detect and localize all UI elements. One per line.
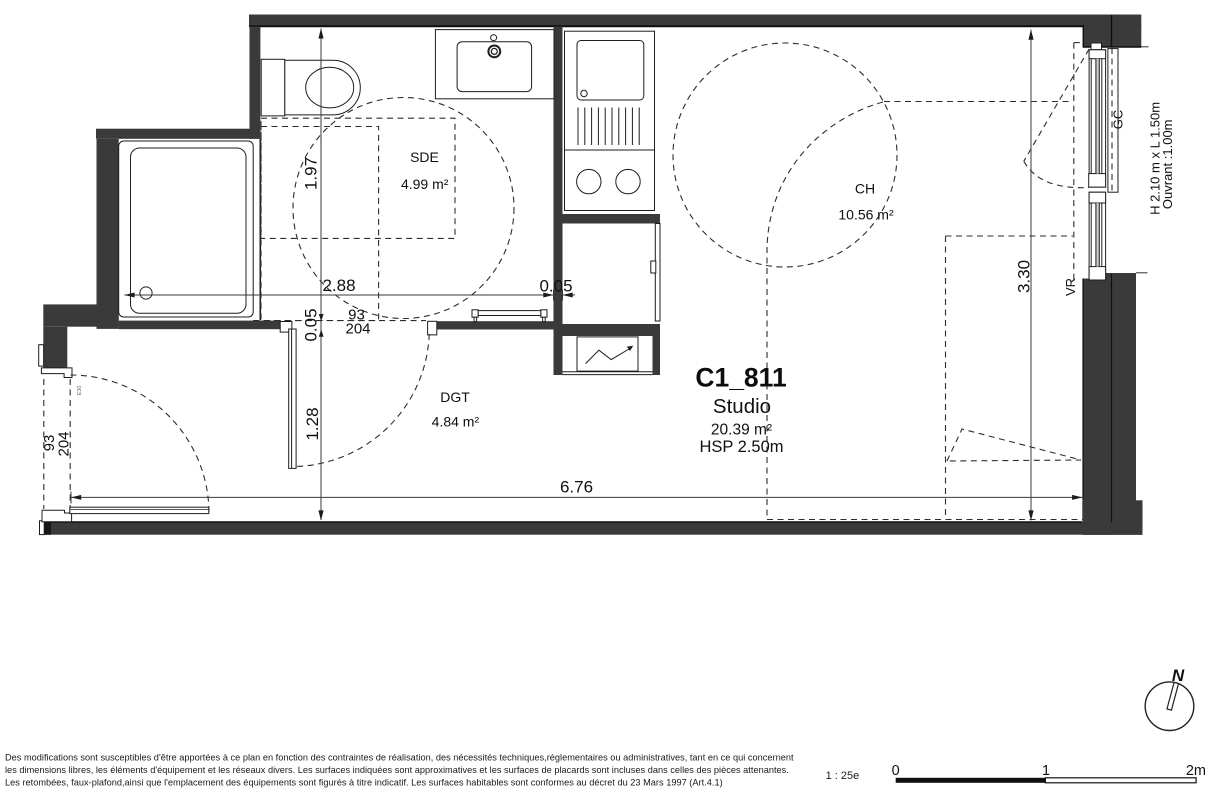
svg-text:204: 204 [345, 320, 370, 337]
svg-text:CH: CH [855, 181, 875, 197]
svg-text:1: 1 [1042, 763, 1050, 779]
svg-text:2m: 2m [1186, 763, 1206, 779]
svg-text:1.28: 1.28 [303, 407, 322, 440]
svg-text:C1_811: C1_811 [695, 363, 786, 393]
svg-text:N: N [1172, 666, 1185, 685]
svg-text:4.84 m²: 4.84 m² [432, 413, 480, 429]
svg-text:VR: VR [1063, 278, 1078, 296]
svg-text:DGT: DGT [440, 389, 470, 405]
svg-text:6.76: 6.76 [560, 478, 593, 497]
svg-text:0.05: 0.05 [302, 308, 321, 341]
svg-text:E30: E30 [77, 386, 83, 396]
svg-text:GC: GC [1111, 110, 1126, 130]
svg-text:1.97: 1.97 [302, 157, 321, 190]
svg-text:0.05: 0.05 [539, 277, 572, 296]
svg-text:10.56 m²: 10.56 m² [838, 207, 894, 223]
svg-text:Ouvrant :1.00m: Ouvrant :1.00m [1160, 119, 1175, 209]
svg-text:3.30: 3.30 [1015, 260, 1034, 293]
svg-text:4.99 m²: 4.99 m² [401, 176, 449, 192]
svg-text:204: 204 [56, 431, 73, 456]
svg-text:1 : 25e: 1 : 25e [826, 770, 860, 782]
svg-text:20.39 m²: 20.39 m² [711, 421, 772, 438]
svg-text:les dimensions libres, les élé: les dimensions libres, les éléments d'éq… [5, 765, 789, 775]
svg-text:Les retombées, faux-plafond,ai: Les retombées, faux-plafond,ainsi que l'… [5, 778, 723, 788]
svg-text:Studio: Studio [713, 395, 771, 418]
svg-text:2.88: 2.88 [322, 276, 355, 295]
svg-text:Des modifications sont suscept: Des modifications sont susceptibles d'êt… [5, 752, 794, 762]
svg-text:0: 0 [892, 763, 900, 779]
svg-text:HSP 2.50m: HSP 2.50m [699, 438, 783, 456]
svg-text:SDE: SDE [410, 149, 439, 165]
